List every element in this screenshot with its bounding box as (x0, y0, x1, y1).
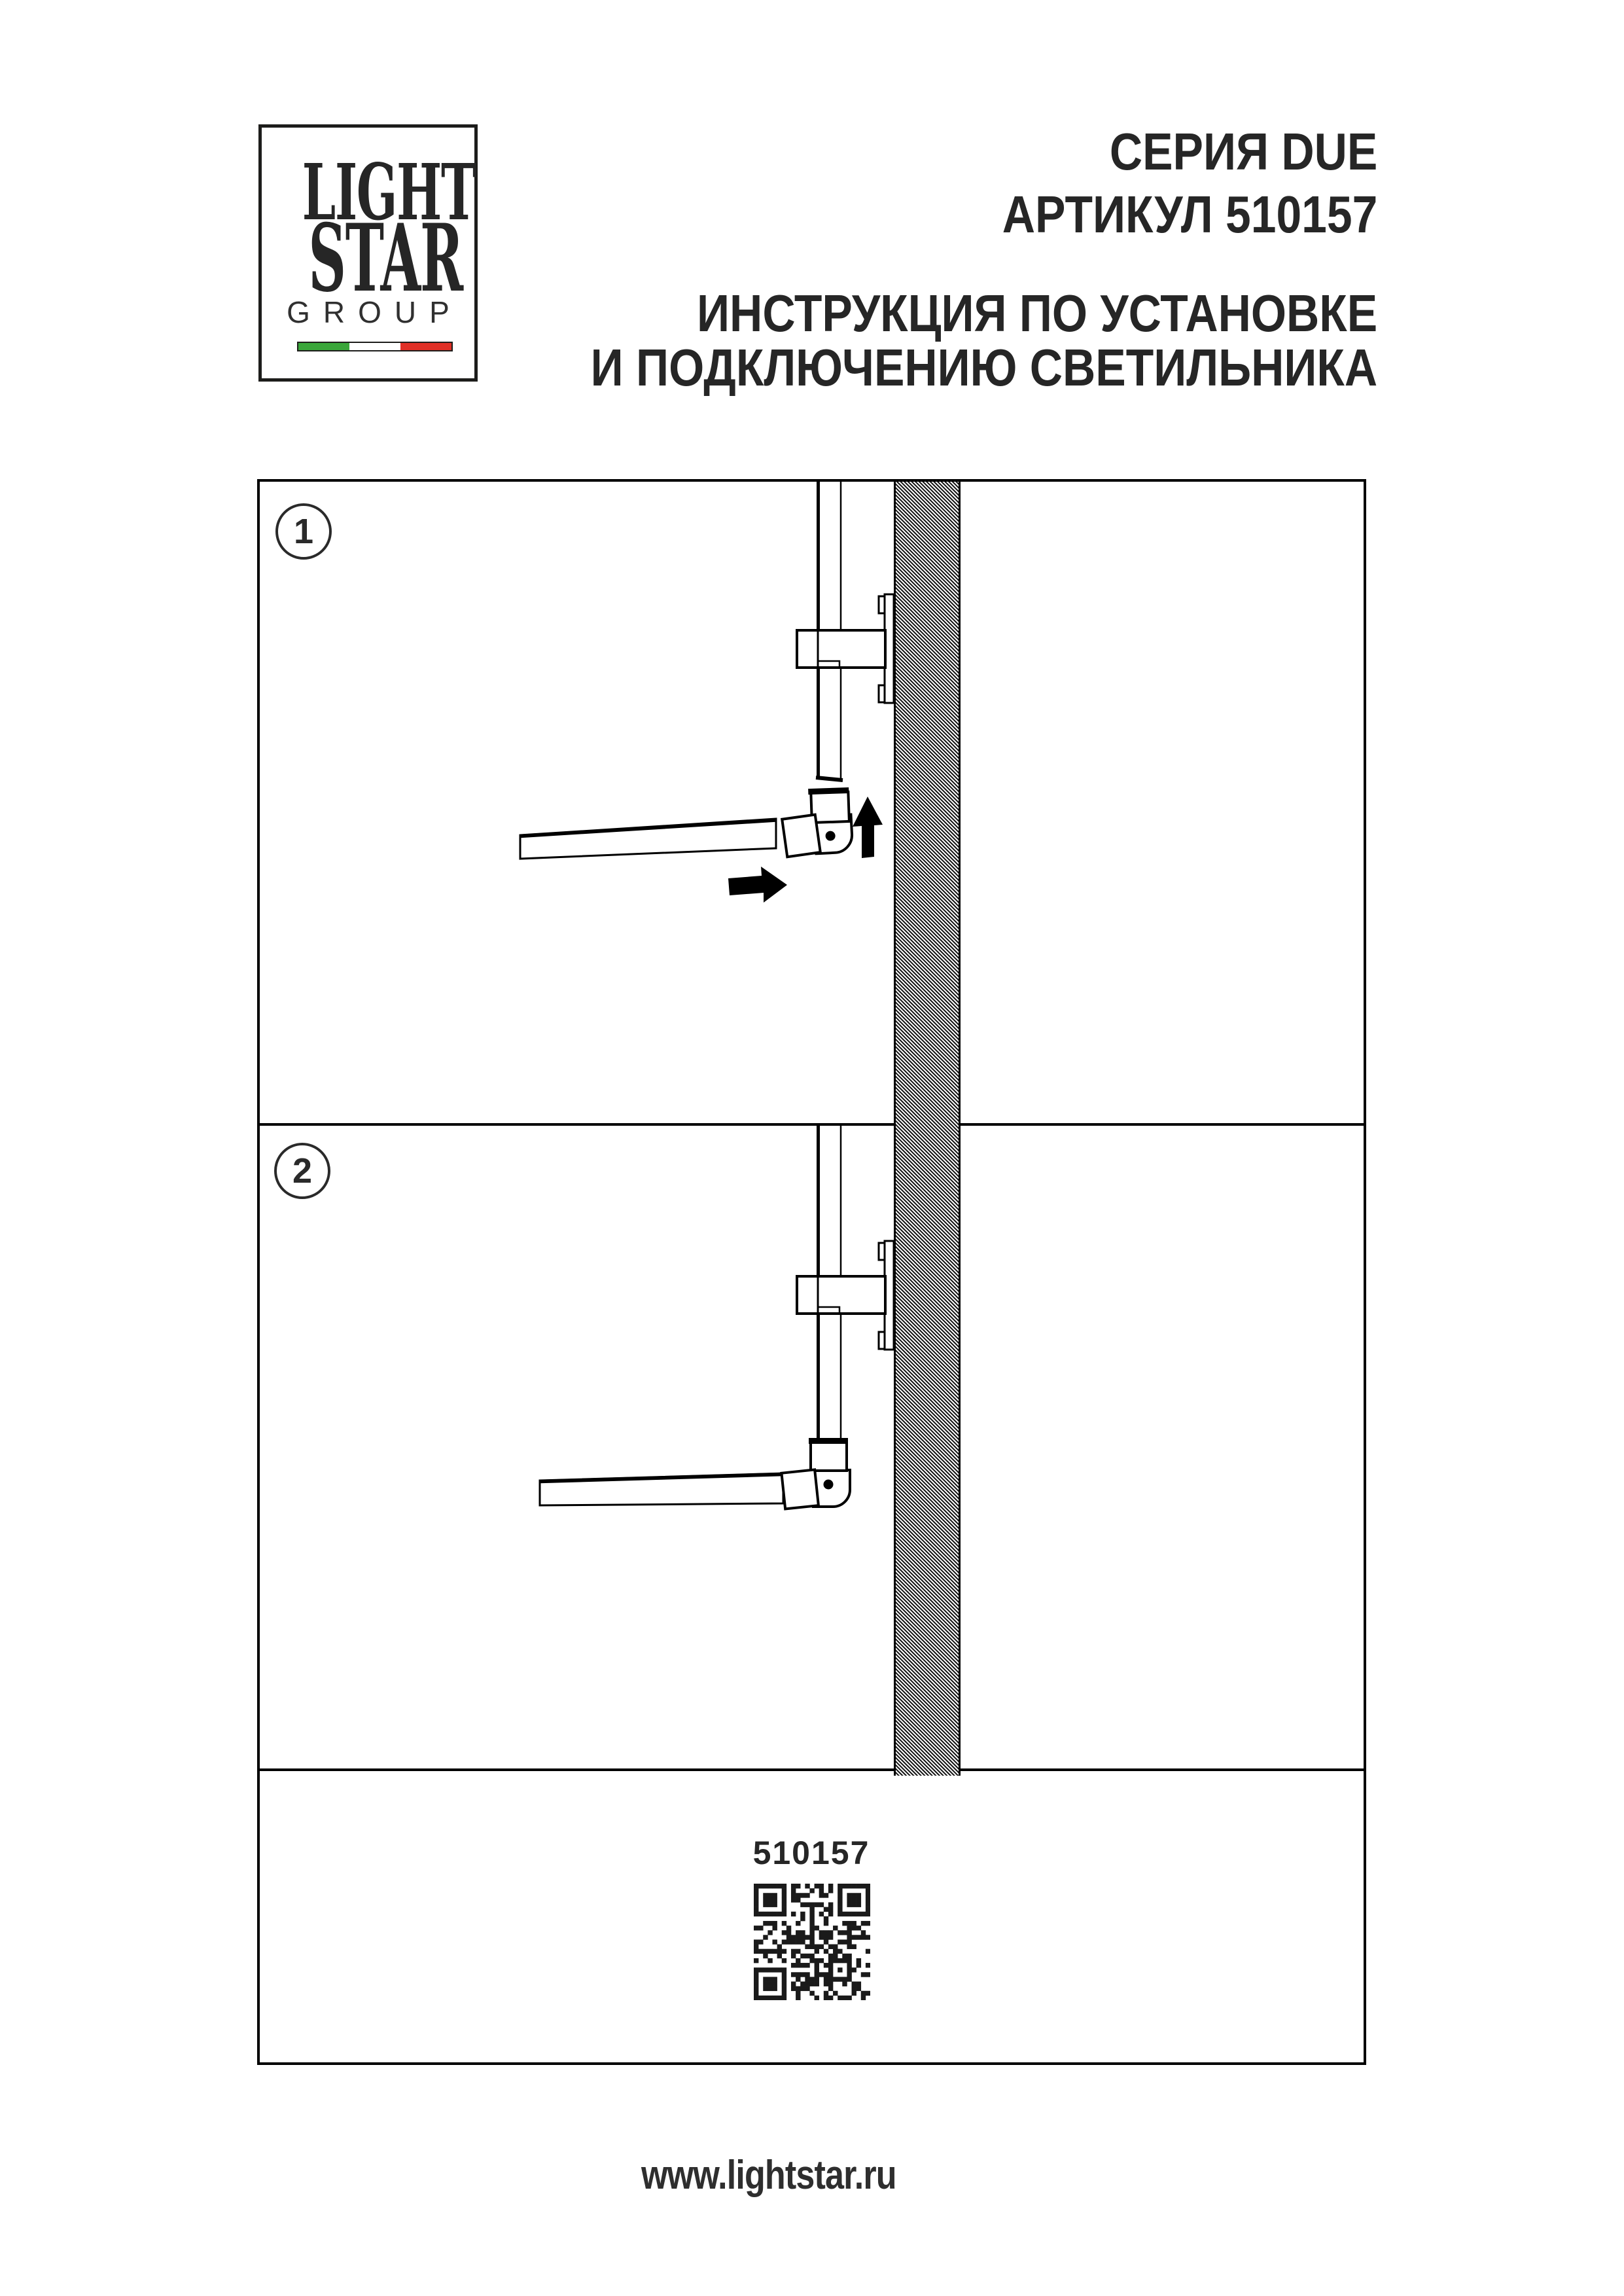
step2-diagram (257, 1126, 1366, 1776)
instruction-line-1: ИНСТРУКЦИЯ ПО УСТАНОВКЕ (591, 286, 1377, 340)
website-url: www.lightstar.ru (641, 2152, 896, 2198)
article-number: 510157 (0, 1834, 1624, 1872)
mounting-bracket (797, 630, 885, 668)
header-series-article: СЕРИЯ DUE АРТИКУЛ 510157 (1002, 120, 1377, 246)
horizontal-bar (520, 819, 776, 859)
instruction-sheet: LIGHT STAR GROUP СЕРИЯ DUE АРТИКУЛ 51015… (0, 0, 1624, 2296)
step1-diagram (257, 479, 1366, 1126)
italian-flag-icon (297, 342, 453, 351)
logo-word-star: STAR (309, 212, 428, 305)
step2-number: 2 (292, 1151, 312, 1191)
flag-white-segment (349, 343, 400, 350)
insert-arrow-right-icon (728, 867, 787, 903)
step1-badge: 1 (275, 503, 332, 560)
logo-word-group: GROUP (262, 297, 474, 327)
article-title: АРТИКУЛ 510157 (1002, 183, 1377, 246)
mounting-bracket (797, 1276, 885, 1314)
instruction-title: ИНСТРУКЦИЯ ПО УСТАНОВКЕ И ПОДКЛЮЧЕНИЮ СВ… (591, 286, 1377, 395)
horizontal-bar (540, 1473, 783, 1505)
wall-section (894, 482, 961, 1126)
wall-section (894, 1126, 961, 1776)
step2-badge: 2 (274, 1143, 330, 1199)
lightstar-logo: LIGHT STAR GROUP (258, 124, 478, 382)
series-title: СЕРИЯ DUE (1002, 120, 1377, 183)
instruction-line-2: И ПОДКЛЮЧЕНИЮ СВЕТИЛЬНИКА (591, 340, 1377, 395)
corner-connector (782, 787, 853, 857)
qr-code (754, 1884, 870, 2000)
insert-arrow-up-icon (853, 797, 883, 858)
flag-green-segment (298, 343, 349, 350)
corner-connector (781, 1438, 850, 1509)
flag-red-segment (400, 343, 451, 350)
step1-number: 1 (294, 511, 313, 552)
connector-pivot-dot (824, 1480, 834, 1490)
